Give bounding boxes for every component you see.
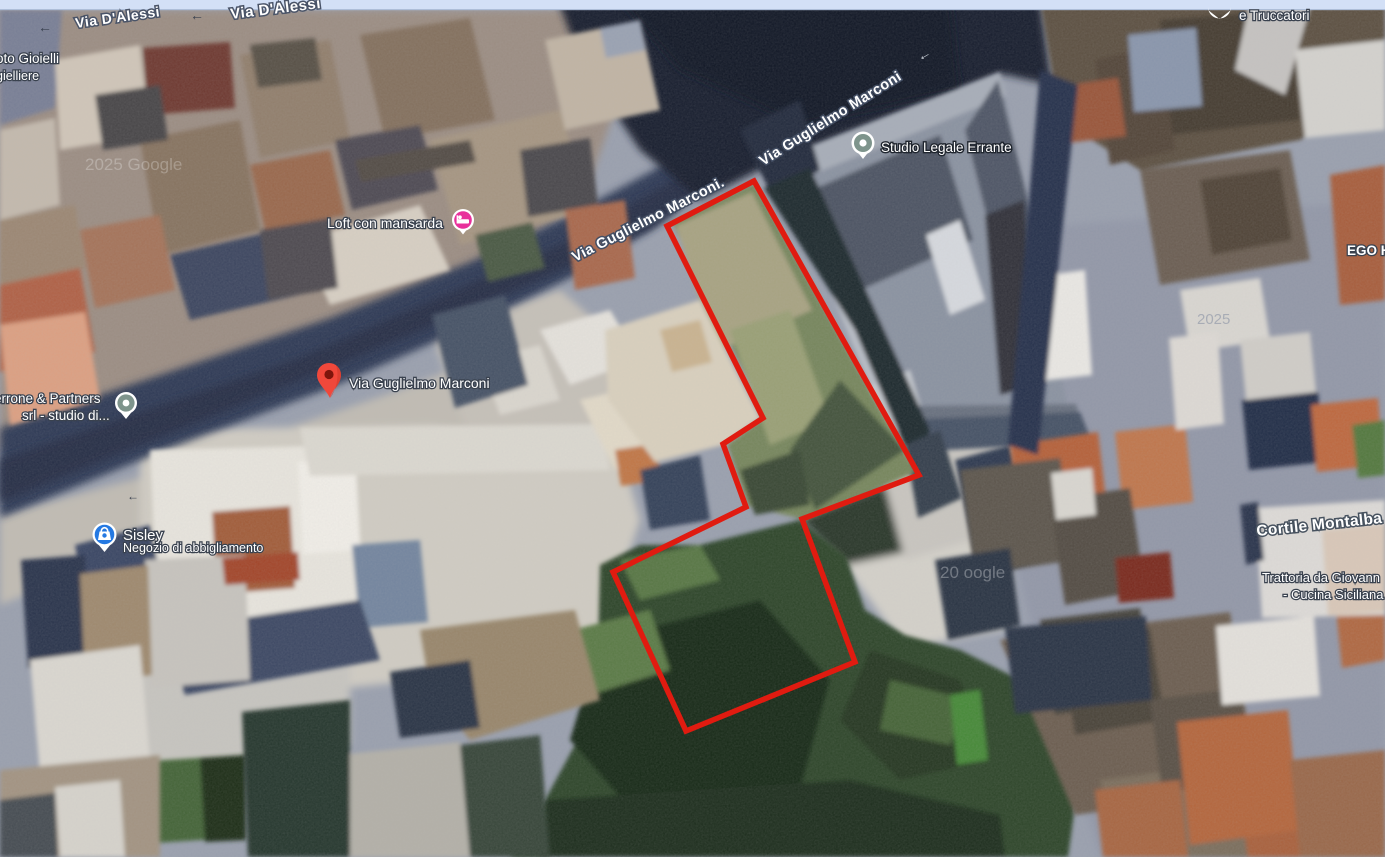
svg-text:e Truccatori: e Truccatori <box>1239 8 1310 23</box>
svg-text:←: ← <box>127 489 139 503</box>
svg-text:2025: 2025 <box>1197 311 1230 328</box>
svg-text:←: ← <box>38 19 52 35</box>
svg-text:- Cucina Siciliana: - Cucina Siciliana <box>1283 587 1384 602</box>
svg-text:Studio Legale Errante: Studio Legale Errante <box>881 140 1012 155</box>
svg-text:2025 Google: 2025 Google <box>85 155 182 174</box>
svg-text:Loft con mansarda: Loft con mansarda <box>327 215 443 231</box>
svg-text:←: ← <box>190 7 204 23</box>
svg-text:gielliere: gielliere <box>0 69 39 83</box>
svg-text:Negozio di abbigliamento: Negozio di abbigliamento <box>123 541 263 555</box>
svg-text:srl - studio di...: srl - studio di... <box>22 408 110 423</box>
svg-text:oto Gioielli: oto Gioielli <box>0 51 59 66</box>
svg-text:Via Guglielmo Marconi: Via Guglielmo Marconi <box>349 375 490 391</box>
svg-text:20 oogle: 20 oogle <box>940 563 1005 582</box>
svg-text:EGO H: EGO H <box>1347 243 1385 258</box>
svg-text:Trattoria da Giovann: Trattoria da Giovann <box>1262 570 1380 585</box>
svg-text:errone & Partners: errone & Partners <box>0 391 101 406</box>
